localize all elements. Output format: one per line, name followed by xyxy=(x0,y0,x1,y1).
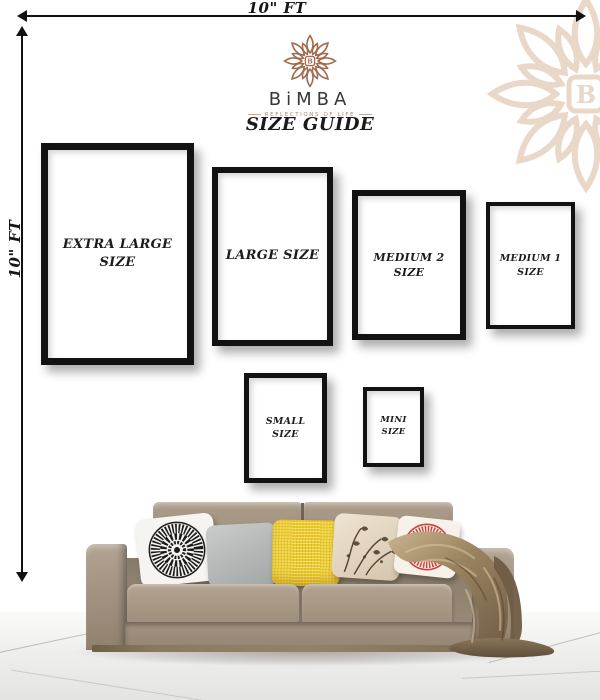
frame-label-line: SIZE xyxy=(266,428,306,441)
page-title: SIZE GUIDE xyxy=(230,114,390,135)
frame-label-line: MINI xyxy=(380,415,406,427)
frame-label: LARGE SIZE xyxy=(226,247,319,265)
frame-label: MEDIUM 1 SIZE xyxy=(500,252,562,279)
throw-blanket xyxy=(376,498,576,660)
frame-label: SMALL SIZE xyxy=(266,415,306,442)
frame-label-line: MEDIUM 1 xyxy=(500,252,562,265)
arrowhead-left-icon xyxy=(17,10,27,22)
frame-label: EXTRA LARGE SIZE xyxy=(63,236,172,272)
frame-label-line: SIZE xyxy=(500,266,562,279)
tile-grout-line xyxy=(11,670,219,700)
frame-label-line: SIZE xyxy=(380,427,406,439)
bimba-flower-icon: B xyxy=(283,34,337,88)
arrowhead-right-icon xyxy=(576,10,586,22)
frame-label-line: SIZE xyxy=(63,254,172,272)
logo-letter: B xyxy=(307,57,313,65)
frame-label-line: SMALL xyxy=(266,415,306,428)
frame-large: LARGE SIZE xyxy=(212,167,333,346)
tile-grout-line xyxy=(462,670,600,679)
mandala-pattern-icon xyxy=(142,517,212,583)
pillow-yellow-textured xyxy=(271,519,340,586)
size-guide-poster: B 10" FT 10" FT xyxy=(0,0,600,700)
frame-label: MEDIUM 2 SIZE xyxy=(374,250,445,281)
arrowhead-up-icon xyxy=(16,26,28,36)
left-dimension-label: 10" FT xyxy=(6,209,24,289)
pillow-plain-gray xyxy=(205,522,278,588)
frame-mini: MINI SIZE xyxy=(363,387,424,467)
frame-label: MINI SIZE xyxy=(380,415,406,439)
frame-medium-2: MEDIUM 2 SIZE xyxy=(352,190,466,340)
frame-label-line: MEDIUM 2 xyxy=(374,250,445,265)
top-dimension-label: 10" FT xyxy=(237,0,317,17)
frame-extra-large: EXTRA LARGE SIZE xyxy=(41,143,194,365)
frame-small: SMALL SIZE xyxy=(244,373,327,483)
watermark-letter: B xyxy=(576,80,596,109)
brand-block: B BiMBA REFLECTIONS OF LIFE xyxy=(230,34,390,118)
left-dimension-line xyxy=(21,34,23,574)
brand-wordmark: BiMBA xyxy=(230,89,390,110)
frame-label-line: LARGE SIZE xyxy=(226,247,319,265)
watermark-flower-icon: B xyxy=(486,0,600,194)
frame-medium-1: MEDIUM 1 SIZE xyxy=(486,202,575,329)
arrowhead-down-icon xyxy=(16,572,28,582)
sofa-armrest-left xyxy=(86,544,127,650)
frame-label-line: EXTRA LARGE xyxy=(63,236,172,254)
frame-label-line: SIZE xyxy=(374,265,445,280)
